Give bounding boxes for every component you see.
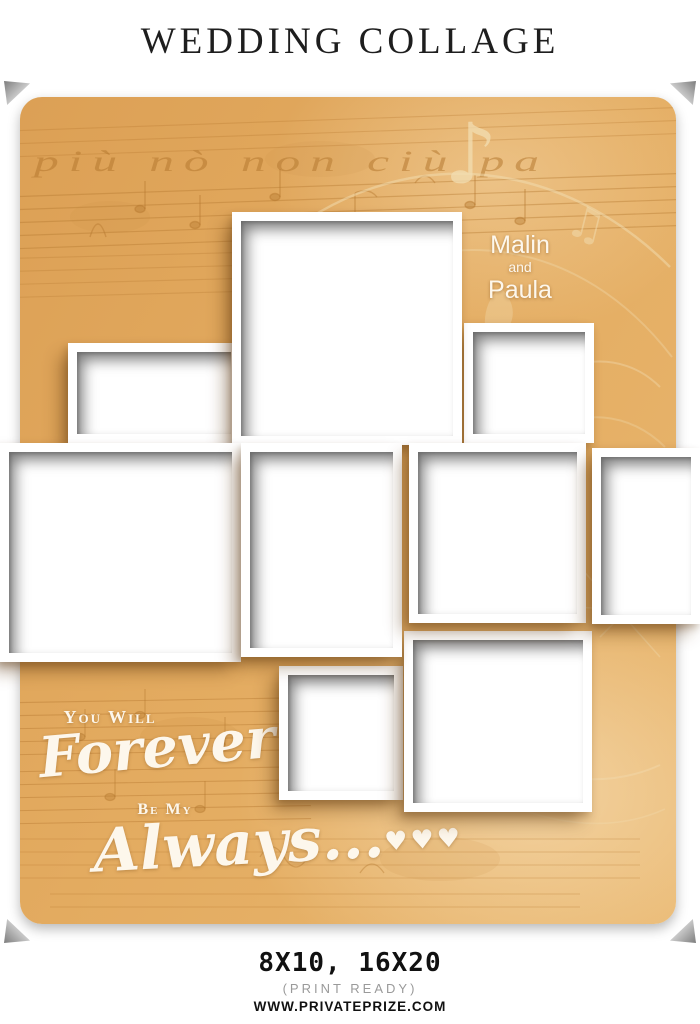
photo-slot-9-inner (413, 640, 583, 803)
svg-text:♪: ♪ (444, 105, 498, 203)
photo-slot-5 (241, 443, 402, 657)
photo-slot-8 (279, 666, 403, 800)
photo-slot-5-inner (250, 452, 393, 648)
photo-slot-1 (232, 212, 462, 445)
photo-slot-3-inner (473, 332, 585, 434)
photo-slot-3 (464, 323, 594, 443)
couple-names: Malin and Paula (452, 231, 588, 304)
couple-name-2: Paula (452, 276, 588, 304)
photo-slot-6-inner (418, 452, 577, 614)
photo-slot-6 (409, 443, 586, 623)
couple-conjunction: and (452, 259, 588, 276)
couple-name-1: Malin (452, 231, 588, 259)
hearts-icon: ♥♥♥ (384, 823, 464, 857)
page-title: WEDDING COLLAGE (0, 20, 700, 63)
photo-slot-9 (404, 631, 592, 812)
photo-slot-8-inner (288, 675, 394, 791)
photo-slot-1-inner (241, 221, 453, 436)
product-preview-page: WEDDING COLLAGE più nò non ciù pa (0, 0, 700, 1024)
photo-slot-4 (0, 443, 241, 662)
photo-slot-7 (592, 448, 700, 624)
photo-slot-2 (68, 343, 240, 443)
photo-slot-2-inner (77, 352, 231, 434)
website-url: WWW.PRIVATEPRIZE.COM (0, 999, 700, 1014)
print-sizes: 8X10, 16X20 (0, 948, 700, 978)
photo-slot-4-inner (9, 452, 232, 653)
photo-slot-7-inner (601, 457, 691, 615)
print-ready-note: (PRINT READY) (0, 981, 700, 996)
